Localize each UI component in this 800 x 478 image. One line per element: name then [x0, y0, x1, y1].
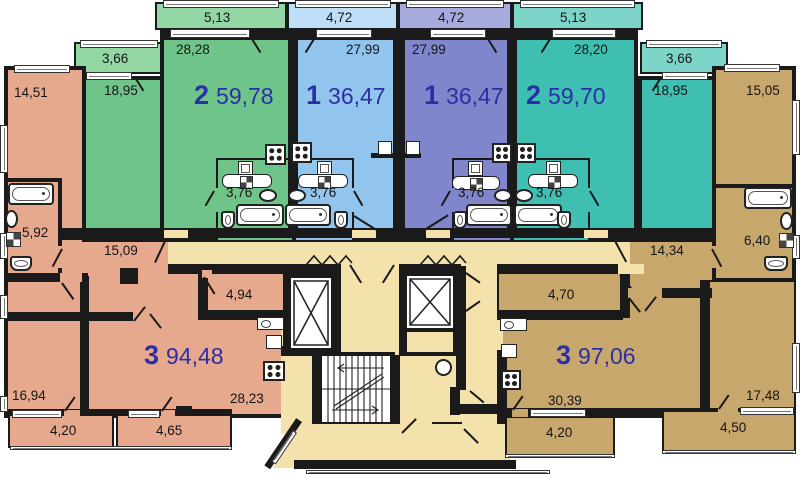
door-gap — [618, 264, 644, 274]
window — [316, 29, 372, 38]
balcony-label: 4,20 — [546, 426, 572, 440]
sink-icon — [780, 212, 793, 230]
window — [14, 65, 70, 73]
kitchen-sink-icon — [500, 318, 527, 331]
stove-icon — [516, 143, 536, 163]
door-gap — [584, 230, 608, 238]
room-label: 14,51 — [14, 86, 48, 100]
bathtub-icon — [744, 187, 792, 209]
apartment-area: 59,78 — [216, 83, 274, 109]
kitchen-sink-icon — [257, 317, 284, 330]
balcony-label: 4,20 — [50, 424, 76, 438]
apartment-label-2-right: 259,70 — [526, 80, 606, 111]
elevator-x-icon — [407, 276, 453, 328]
window — [0, 396, 8, 412]
balcony-label: 5,13 — [560, 11, 586, 25]
apartment-label-1-right: 136,47 — [424, 80, 504, 111]
elevator-1-door — [305, 254, 353, 267]
room-label: 16,94 — [12, 389, 46, 403]
apartment-label-3-left: 394,48 — [144, 340, 224, 371]
window — [662, 72, 708, 80]
wall — [312, 346, 322, 434]
toilet-icon — [334, 211, 348, 229]
sink-icon — [288, 189, 306, 202]
balcony-rail — [10, 446, 232, 450]
room-label: 30,39 — [548, 394, 582, 408]
window — [740, 407, 794, 415]
room-label: 27,99 — [346, 43, 380, 57]
wall — [700, 280, 710, 418]
window — [12, 410, 62, 418]
balcony-label: 4,72 — [438, 11, 464, 25]
door-gap — [164, 230, 188, 238]
washing-machine-icon — [779, 233, 794, 248]
wall — [4, 312, 133, 321]
outer-line — [306, 470, 550, 474]
balcony-rail — [505, 454, 615, 458]
wall — [390, 355, 400, 423]
stove-icon — [291, 142, 312, 163]
toilet-icon — [764, 256, 788, 271]
window — [80, 40, 158, 48]
room-label: 15,05 — [746, 84, 780, 98]
room-1895-right — [638, 76, 716, 242]
elevator-2-shaft — [407, 276, 453, 328]
wall — [458, 404, 502, 414]
balcony-rail — [662, 450, 796, 454]
pedestal-sink-icon — [468, 161, 483, 176]
door-gap — [352, 230, 376, 238]
apartment-label-1-left: 136,47 — [306, 80, 386, 111]
room-label: 28,28 — [176, 43, 210, 57]
wall — [294, 460, 516, 469]
window — [792, 100, 800, 155]
toilet-icon — [10, 256, 32, 271]
apartment-area: 97,06 — [578, 343, 636, 369]
elevator-x-icon — [291, 278, 331, 348]
door-gap — [718, 408, 738, 416]
room-label: 4,70 — [548, 288, 574, 302]
apartment-rooms: 1 — [424, 80, 439, 110]
apartment-area: 94,48 — [166, 343, 224, 369]
window — [170, 29, 250, 38]
zigzag-door-icon — [305, 254, 353, 267]
elevator-lobby — [341, 268, 399, 352]
stairwell — [322, 356, 390, 422]
door-gap — [512, 409, 528, 417]
wall — [393, 28, 405, 238]
bathtub-icon — [8, 183, 54, 205]
kitchen-counter-icon — [266, 335, 282, 349]
sink-icon — [494, 189, 512, 202]
apartment-label-3-right: 397,06 — [556, 340, 636, 371]
apartment-area: 36,47 — [328, 83, 386, 109]
apartment-area: 36,47 — [446, 83, 504, 109]
toilet-icon — [557, 211, 571, 229]
wall — [80, 276, 89, 422]
bathtub-icon — [236, 204, 284, 226]
window — [724, 64, 780, 72]
room-1895-left — [82, 76, 164, 242]
zigzag-door-icon — [419, 254, 467, 267]
window — [163, 0, 279, 8]
hall-label: 14,34 — [650, 244, 684, 258]
sink-icon — [5, 210, 18, 228]
balcony-label: 3,66 — [102, 52, 128, 66]
bath-label: 3,76 — [536, 186, 562, 200]
window — [430, 29, 486, 38]
door-gap — [426, 230, 450, 238]
apartment-rooms: 3 — [556, 340, 571, 370]
vent-shaft — [378, 141, 392, 155]
room-label: 18,95 — [654, 84, 688, 98]
bathtub-icon — [285, 204, 331, 226]
stove-icon — [492, 143, 512, 163]
elevator-2-door — [419, 254, 467, 267]
bath-label: 5,92 — [22, 226, 48, 240]
balcony-label: 3,66 — [666, 52, 692, 66]
window — [552, 29, 616, 38]
window — [406, 0, 504, 8]
stove-icon — [263, 361, 285, 381]
bath-label: 3,76 — [310, 186, 336, 200]
bathtub-icon — [514, 204, 562, 226]
window — [295, 0, 391, 8]
bath-label: 3,76 — [226, 186, 252, 200]
room-label: 4,94 — [226, 288, 252, 302]
apartment-rooms: 3 — [144, 340, 159, 370]
floor-plan: 5,13 4,72 4,72 5,13 3,66 3,66 14,51 28,2… — [0, 0, 800, 478]
kitchen-counter-icon — [501, 344, 517, 358]
apartment-rooms: 2 — [526, 80, 541, 110]
hall-label: 15,09 — [104, 244, 138, 258]
room-label: 18,95 — [104, 84, 138, 98]
window — [86, 72, 132, 80]
door-gap — [161, 410, 175, 418]
stairs-icon — [322, 356, 390, 422]
elevator-1-shaft — [291, 278, 331, 348]
sink-icon — [259, 189, 277, 202]
door-gap — [64, 410, 80, 418]
apartment-label-2-left: 259,78 — [194, 80, 274, 111]
window — [792, 343, 800, 393]
apartment-area: 59,70 — [548, 83, 606, 109]
lobby-door-gap — [348, 262, 394, 270]
balcony-label: 5,13 — [204, 11, 230, 25]
vent-shaft — [406, 141, 420, 155]
door-gap — [60, 273, 82, 282]
room-label: 28,20 — [574, 43, 608, 57]
room-label: 27,99 — [412, 43, 446, 57]
window — [128, 410, 160, 418]
balcony-label: 4,65 — [156, 424, 182, 438]
pillar — [120, 268, 138, 284]
toilet-icon — [453, 211, 467, 229]
apartment-rooms: 2 — [194, 80, 209, 110]
window — [530, 409, 586, 417]
bath-label: 3,76 — [458, 186, 484, 200]
window — [0, 125, 8, 173]
bath-label: 6,40 — [744, 234, 770, 248]
wall — [168, 264, 298, 274]
room-label: 28,23 — [230, 392, 264, 406]
window — [0, 295, 8, 319]
stove-icon — [501, 370, 521, 390]
stove-icon — [265, 144, 286, 165]
balcony-label: 4,72 — [326, 11, 352, 25]
room-label: 17,48 — [746, 389, 780, 403]
wall — [58, 228, 714, 238]
bathtub-icon — [466, 204, 512, 226]
apartment-rooms: 1 — [306, 80, 321, 110]
washing-machine-icon — [6, 232, 21, 247]
elevator-2-subroom — [407, 332, 453, 352]
window — [646, 40, 722, 48]
toilet-icon — [221, 211, 235, 229]
balcony-label: 4,50 — [720, 421, 746, 435]
refuse-chute-icon — [435, 359, 452, 376]
sink-icon — [515, 189, 533, 202]
wall — [497, 264, 630, 274]
window — [520, 0, 635, 8]
